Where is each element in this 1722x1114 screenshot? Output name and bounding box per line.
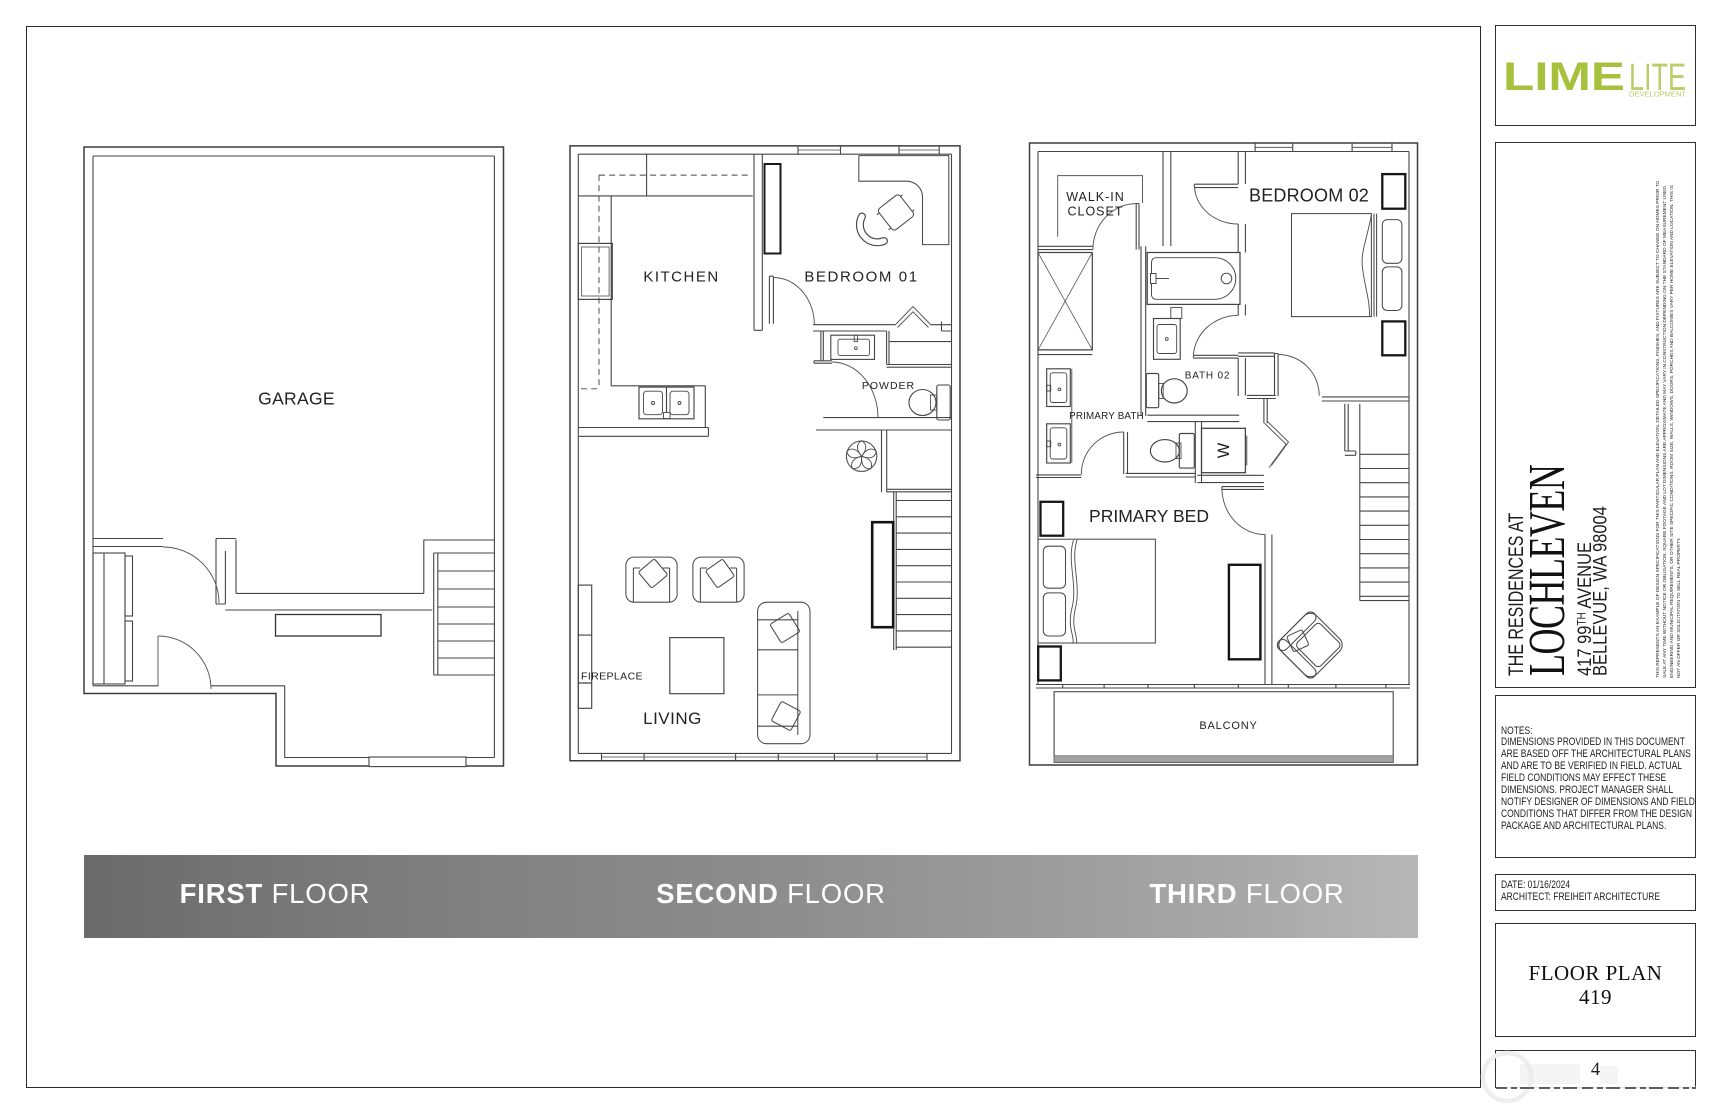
- svg-text:ENGINEERING AND MUNICIPAL REQU: ENGINEERING AND MUNICIPAL REQUIREMENTS, …: [1669, 185, 1675, 678]
- svg-text:LOCHLEVEN: LOCHLEVEN: [1517, 464, 1575, 676]
- svg-text:THIS REPRESENTS AN EXAMPLE OF: THIS REPRESENTS AN EXAMPLE OF DESIGN SPE…: [1655, 180, 1661, 678]
- svg-text:SALE AT ANY TIME WITHOUT NOTIC: SALE AT ANY TIME WITHOUT NOTICE OR OBLIG…: [1662, 185, 1668, 678]
- svg-text:NOT AN OFFER OR SOLICITATION T: NOT AN OFFER OR SOLICITATION TO SELL REA…: [1676, 537, 1682, 678]
- svg-text:BELLEVUE, WA 98004: BELLEVUE, WA 98004: [1589, 506, 1611, 676]
